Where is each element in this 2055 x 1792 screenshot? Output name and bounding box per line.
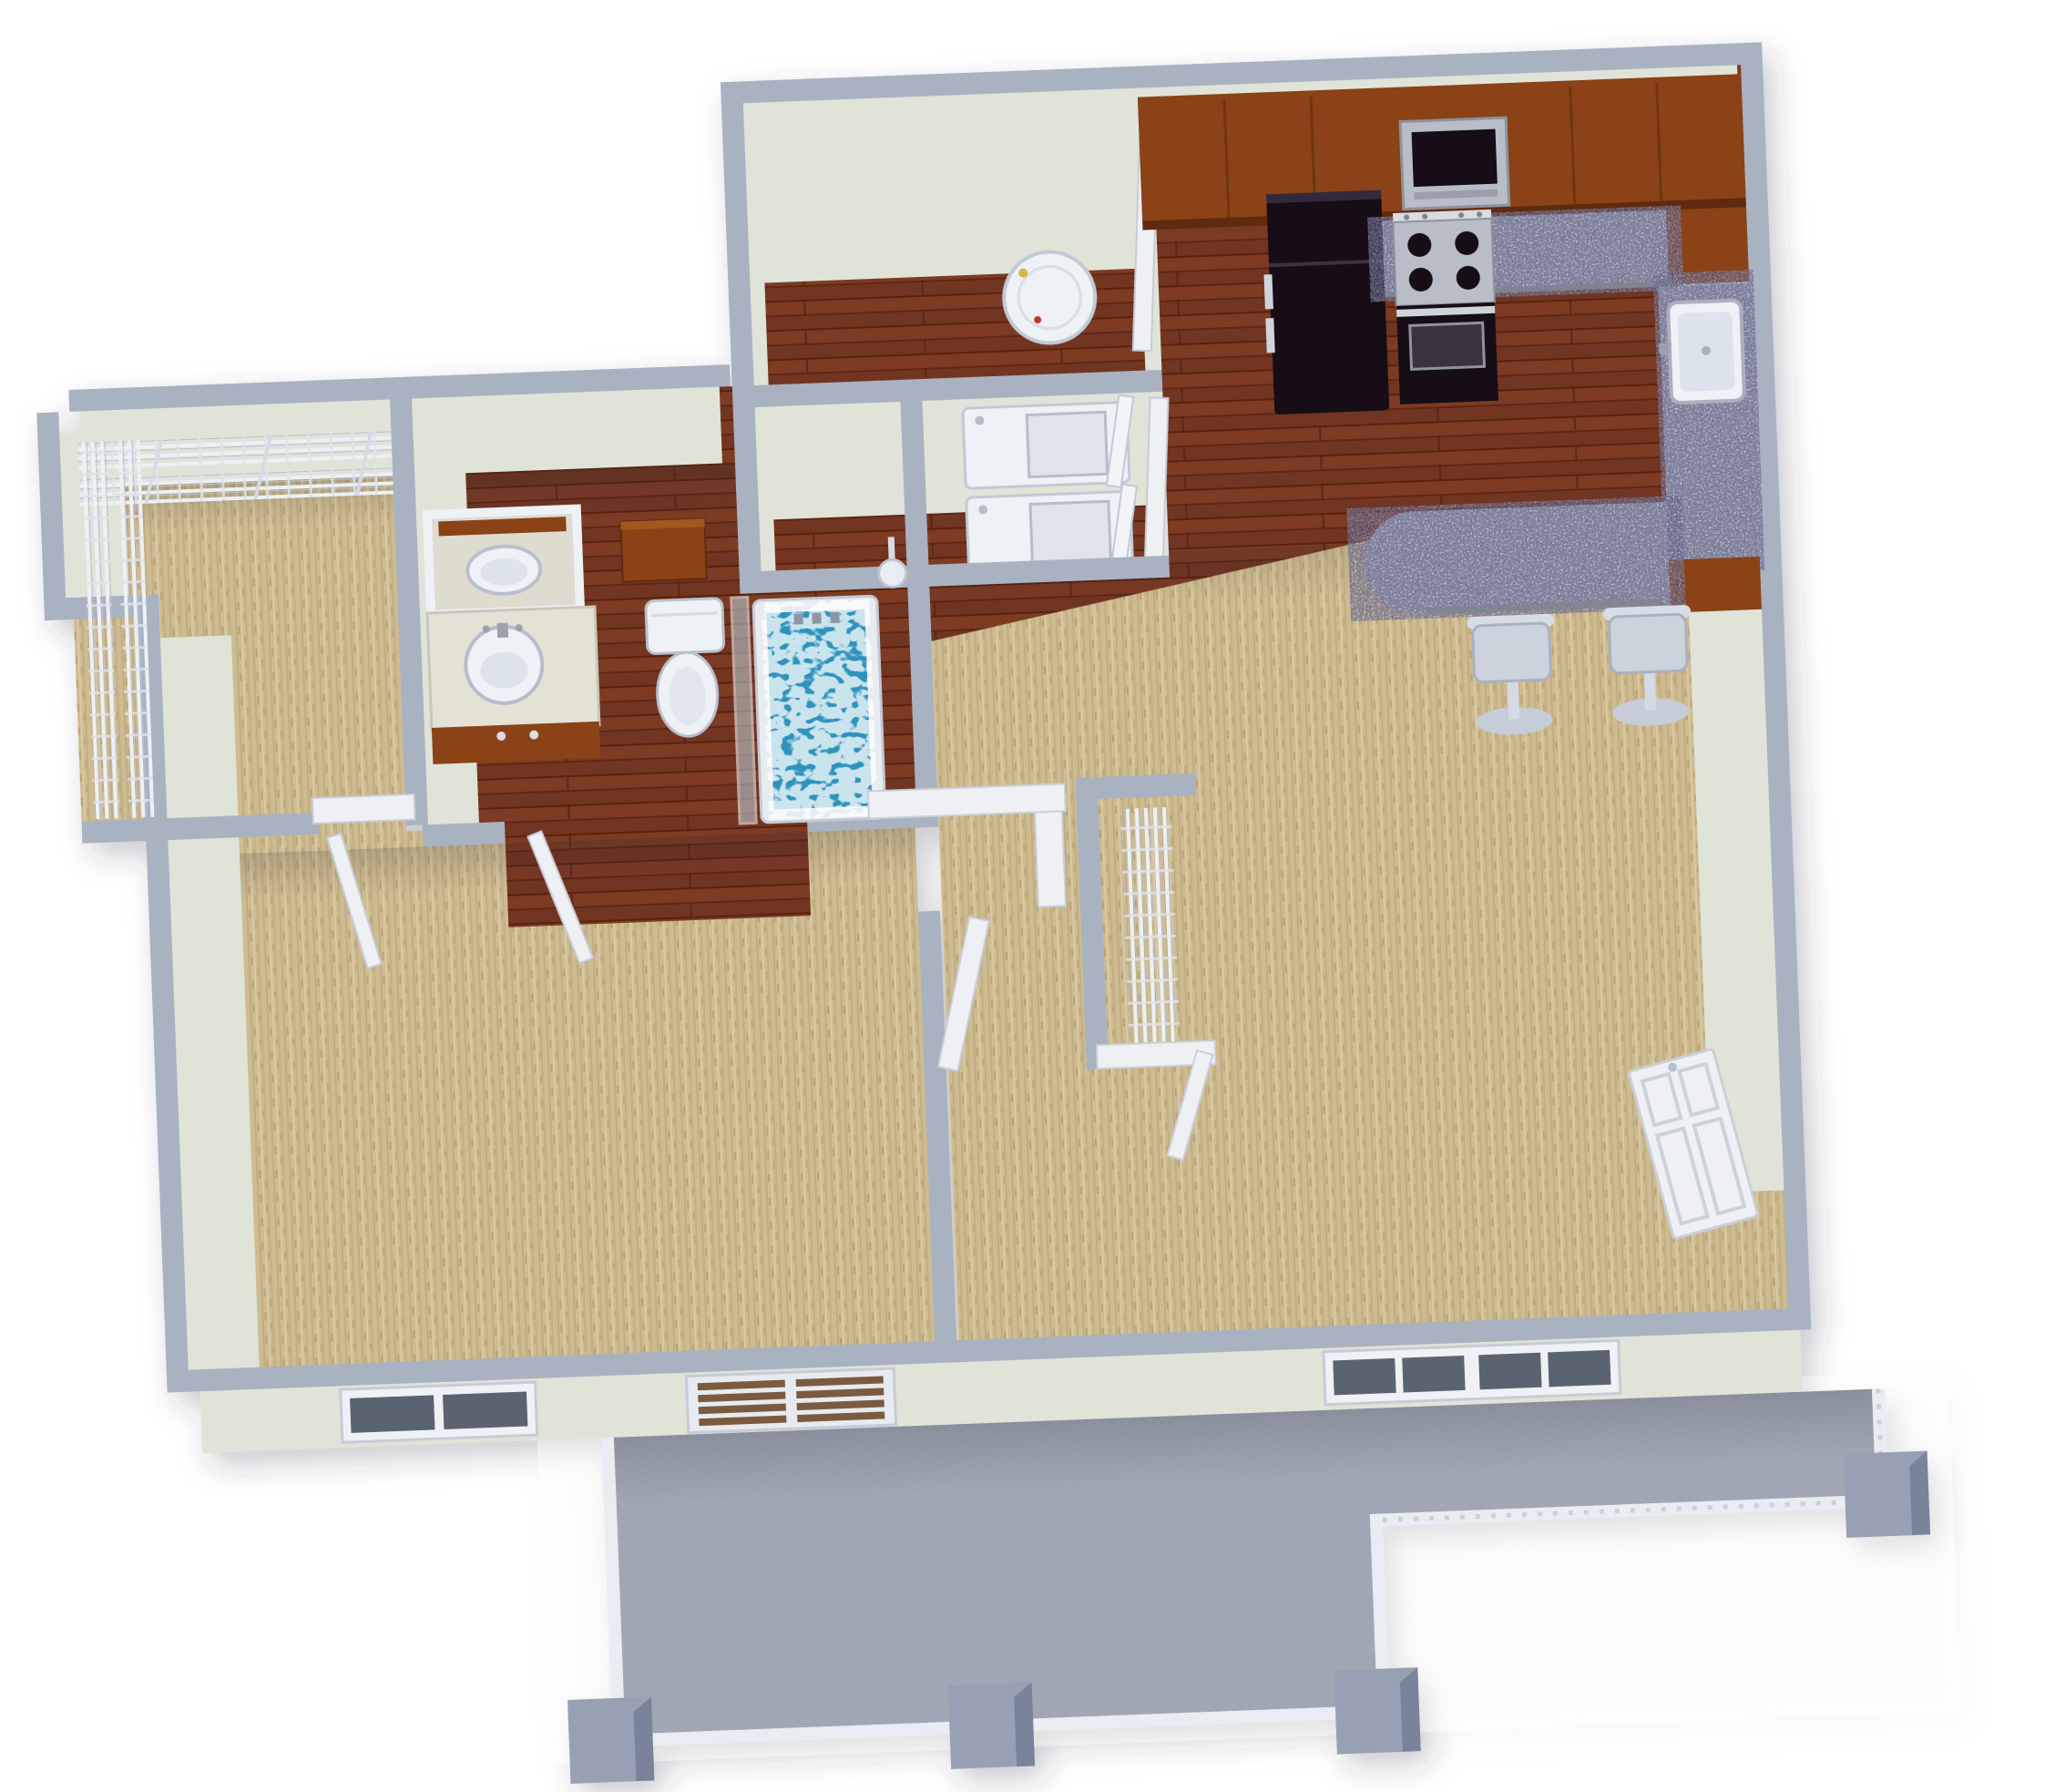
corner-post <box>948 1682 1035 1768</box>
corner-post <box>567 1696 654 1783</box>
microwave <box>1400 118 1509 209</box>
linen-wire-shelving <box>1120 807 1181 1044</box>
oven-window <box>1410 323 1485 369</box>
apartment-unit <box>25 38 1937 1792</box>
bathroom-front-wall-left <box>423 822 506 846</box>
kitchen-sink <box>1657 300 1744 403</box>
water-heater <box>1002 251 1097 345</box>
hall-door-jamb <box>1035 811 1066 906</box>
living-room-double-window <box>1324 1340 1620 1404</box>
linen-closet-top-wall <box>1076 773 1197 800</box>
vanity <box>427 607 600 764</box>
corner-upper-cabinet <box>1666 207 1749 284</box>
dryer-door-opening <box>1030 501 1111 566</box>
bar-stool <box>1603 605 1695 728</box>
corner-post <box>1334 1667 1420 1754</box>
breakfast-bar <box>1363 502 1671 618</box>
water-caustics <box>766 609 872 810</box>
fridge-handle <box>1263 274 1273 309</box>
washer <box>963 394 1138 493</box>
cooktop <box>1393 219 1494 306</box>
fridge-handle-2 <box>1265 318 1274 353</box>
vanity-faucet <box>497 623 509 638</box>
range-oven <box>1393 210 1498 404</box>
floor-plan-canvas <box>0 0 2055 1792</box>
tub-faucet <box>793 613 803 624</box>
bedroom-window <box>341 1382 537 1442</box>
washer-door-opening <box>1027 412 1108 476</box>
floor-plan-render <box>0 0 2055 1792</box>
patio-door-top <box>686 1368 895 1433</box>
corner-post <box>1844 1450 1930 1537</box>
bathtub <box>753 596 885 823</box>
refrigerator <box>1261 189 1389 415</box>
bar-stool <box>1467 614 1559 737</box>
pass-through-sink-niche <box>427 509 580 615</box>
sink-base-cabinet <box>1669 557 1762 613</box>
closet-door-header <box>312 794 415 824</box>
